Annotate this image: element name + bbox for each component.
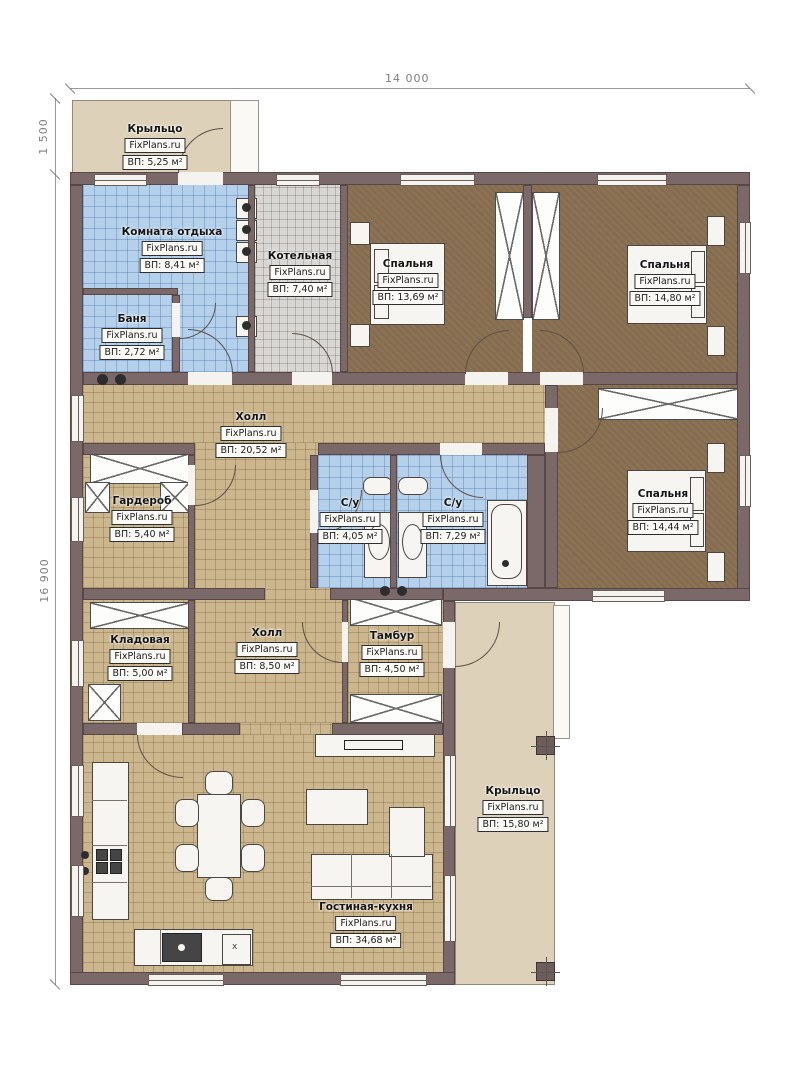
toilet-icon — [398, 477, 428, 495]
wardrobe-cabinet-icon — [350, 597, 442, 626]
door-gap-storage — [137, 723, 182, 735]
appliance-x-mark: x — [232, 942, 237, 952]
chair-icon — [175, 799, 199, 827]
wall-storage-right — [188, 600, 195, 723]
sofa-cushion-line — [391, 854, 392, 898]
watermark-box: FixPlans.ru — [634, 274, 695, 289]
door-gap-bedroom3 — [545, 408, 558, 452]
bathtub-inner — [491, 504, 522, 579]
watermark-box: FixPlans.ru — [236, 642, 297, 657]
room-name: С/у — [341, 497, 359, 509]
room-name: Тамбур — [370, 630, 415, 642]
window — [592, 590, 665, 602]
nightstand-icon — [350, 222, 370, 245]
wall-hall-wardrobe — [83, 443, 195, 455]
window — [444, 875, 456, 942]
room-label-bedroom1: Спальня FixPlans.ru ВП: 13,69 м² — [372, 258, 443, 305]
room-name: Комната отдыха — [122, 226, 223, 238]
opening-corridor-hall2 — [265, 588, 330, 600]
room-name: Спальня — [638, 488, 688, 500]
watermark-box: FixPlans.ru — [377, 273, 438, 288]
watermark-box: FixPlans.ru — [422, 512, 483, 527]
wall-bedrooms-bottom — [83, 372, 737, 385]
dimension-line-left — [55, 98, 56, 985]
door-gap-porch-top — [178, 172, 223, 185]
boiler-unit-dot — [242, 247, 251, 256]
room-name: Спальня — [383, 258, 433, 270]
stove-burner-icon — [110, 849, 122, 861]
room-name: С/у — [444, 497, 462, 509]
room-name: Спальня — [640, 259, 690, 271]
room-label-hall2: Холл FixPlans.ru ВП: 8,50 м² — [234, 627, 299, 674]
wall-boiler-bedroom1 — [340, 185, 348, 372]
wall-bath-horizontal — [83, 288, 178, 295]
stove-burner-icon — [110, 862, 122, 874]
porch-bottom-step — [553, 605, 570, 739]
nightstand-icon — [707, 326, 725, 356]
boiler-unit-dot — [242, 321, 251, 330]
nightstand-icon — [707, 216, 725, 246]
window — [340, 974, 427, 986]
room-name: Холл — [252, 627, 283, 639]
wardrobe-cabinet-icon — [350, 694, 442, 723]
room-label-bedroom2: Спальня FixPlans.ru ВП: 14,80 м² — [629, 259, 700, 306]
wardrobe-cabinet-icon — [90, 453, 190, 484]
utility-point-icon — [115, 374, 126, 385]
area-box: ВП: 15,80 м² — [477, 817, 548, 832]
wall-living-top-c — [332, 723, 443, 735]
area-box: ВП: 13,69 м² — [372, 290, 443, 305]
utility-point-icon — [397, 586, 407, 596]
counter-divider — [92, 800, 127, 801]
area-box: ВП: 5,25 м² — [122, 155, 187, 170]
porch-pillar — [536, 736, 555, 755]
room-name: Кладовая — [110, 634, 170, 646]
counter-divider — [92, 882, 127, 883]
dining-table-icon — [197, 794, 241, 878]
hall-main-floor — [83, 385, 545, 443]
window — [71, 865, 84, 917]
watermark-box: FixPlans.ru — [109, 649, 170, 664]
room-label-hall-main: Холл FixPlans.ru ВП: 20,52 м² — [215, 411, 286, 458]
wall-wardrobe-center — [523, 185, 532, 318]
sink-faucet-dot — [177, 943, 186, 952]
boiler-unit-dot — [242, 225, 251, 234]
room-name: Гардероб — [113, 495, 172, 507]
window — [276, 174, 320, 186]
chair-icon — [175, 844, 199, 872]
porch-top-step — [230, 100, 259, 174]
floor-plan-canvas: 14 000 1 500 16 900 — [0, 0, 792, 1080]
window — [400, 174, 475, 186]
watermark-box: FixPlans.ru — [269, 265, 330, 280]
area-box: ВП: 14,80 м² — [629, 291, 700, 306]
room-label-wc2: С/у FixPlans.ru ВП: 7,29 м² — [420, 497, 485, 544]
utility-point-icon — [97, 374, 108, 385]
sofa-back-line — [311, 886, 431, 887]
wardrobe-cabinet-icon — [532, 192, 560, 320]
nightstand-icon — [350, 324, 370, 347]
watermark-box: FixPlans.ru — [319, 512, 380, 527]
wardrobe-cabinet-icon — [90, 602, 190, 629]
chair-icon — [205, 771, 233, 795]
window — [739, 455, 751, 507]
window — [444, 755, 456, 827]
room-name: Баня — [117, 313, 146, 325]
window — [597, 174, 667, 186]
room-name: Гостиная-кухня — [319, 901, 413, 913]
wardrobe-cabinet-icon — [495, 192, 524, 320]
dimension-line-top — [70, 88, 750, 89]
door-gap-wc2 — [440, 443, 482, 455]
wall-hall-wc — [318, 443, 545, 455]
area-box: ВП: 4,05 м² — [317, 529, 382, 544]
watermark-box: FixPlans.ru — [124, 138, 185, 153]
watermark-box: FixPlans.ru — [141, 241, 202, 256]
chair-icon — [241, 844, 265, 872]
nightstand-icon — [707, 443, 725, 473]
room-label-living-kitchen: Гостиная-кухня FixPlans.ru ВП: 34,68 м² — [319, 901, 413, 948]
wall-living-top-b — [182, 723, 240, 735]
room-label-rest-room: Комната отдыха FixPlans.ru ВП: 8,41 м² — [122, 226, 223, 273]
wall-wc-center — [390, 455, 397, 588]
area-box: ВП: 14,44 м² — [627, 520, 698, 535]
wall-living-top-a — [83, 723, 140, 735]
window — [71, 497, 84, 542]
toilet-icon — [363, 477, 393, 495]
watermark-box: FixPlans.ru — [335, 916, 396, 931]
porch-pillar — [536, 962, 555, 981]
nightstand-icon — [707, 552, 725, 582]
window — [71, 395, 84, 442]
room-name: Котельная — [268, 250, 332, 262]
area-box: ВП: 5,00 м² — [107, 666, 172, 681]
room-label-wc1: С/у FixPlans.ru ВП: 4,05 м² — [317, 497, 382, 544]
bathtub-drain — [502, 560, 509, 567]
area-box: ВП: 5,40 м² — [109, 527, 174, 542]
stove-knob-icon — [81, 851, 89, 859]
room-label-boiler: Котельная FixPlans.ru ВП: 7,40 м² — [267, 250, 332, 297]
room-label-storage: Кладовая FixPlans.ru ВП: 5,00 м² — [107, 634, 172, 681]
area-box: ВП: 34,68 м² — [330, 933, 401, 948]
room-label-vestibule: Тамбур FixPlans.ru ВП: 4,50 м² — [359, 630, 424, 677]
wardrobe-cabinet-icon — [85, 482, 110, 513]
door-gap-entrance — [443, 622, 455, 668]
tv-icon — [344, 740, 403, 750]
room-label-porch-bottom: Крыльцо FixPlans.ru ВП: 15,80 м² — [477, 785, 548, 832]
area-box: ВП: 7,40 м² — [267, 282, 332, 297]
coffee-table-icon — [306, 789, 368, 825]
window — [94, 174, 147, 186]
wardrobe-cabinet-icon — [88, 684, 121, 721]
chair-icon — [241, 799, 265, 827]
area-box: ВП: 2,72 м² — [99, 345, 164, 360]
area-box: ВП: 7,29 м² — [420, 529, 485, 544]
utility-point-icon — [380, 586, 390, 596]
watermark-box: FixPlans.ru — [111, 510, 172, 525]
wall-restroom-boiler — [248, 185, 255, 372]
wardrobe-cabinet-icon — [598, 388, 739, 420]
sofa-seat-icon — [311, 854, 433, 900]
wall-mid-bottom-left — [83, 588, 265, 600]
room-label-wardrobe: Гардероб FixPlans.ru ВП: 5,40 м² — [109, 495, 174, 542]
stove-burner-icon — [96, 849, 108, 861]
room-name: Крыльцо — [128, 123, 183, 135]
kitchen-counter-left — [92, 762, 129, 920]
stove-burner-icon — [96, 862, 108, 874]
watermark-box: FixPlans.ru — [632, 503, 693, 518]
area-box: ВП: 4,50 м² — [359, 662, 424, 677]
boiler-unit-dot — [242, 203, 251, 212]
sofa-cushion-line — [351, 854, 352, 898]
dimension-top-label: 14 000 — [385, 72, 430, 85]
window — [739, 222, 751, 274]
door-gap-bath — [172, 303, 180, 337]
dimension-porch-label: 1 500 — [37, 118, 50, 155]
window — [71, 640, 84, 687]
wall-wc2-right — [527, 455, 545, 588]
window — [71, 765, 84, 817]
room-label-bath: Баня FixPlans.ru ВП: 2,72 м² — [99, 313, 164, 360]
counter-divider — [160, 929, 161, 964]
dimension-left-label: 16 900 — [38, 558, 51, 603]
area-box: ВП: 8,41 м² — [139, 258, 204, 273]
door-gap-wardrobe — [188, 465, 195, 505]
chair-icon — [205, 877, 233, 901]
area-box: ВП: 8,50 м² — [234, 659, 299, 674]
room-name: Холл — [236, 411, 267, 423]
area-box: ВП: 20,52 м² — [215, 443, 286, 458]
room-label-bedroom3: Спальня FixPlans.ru ВП: 14,44 м² — [627, 488, 698, 535]
room-label-porch-top: Крыльцо FixPlans.ru ВП: 5,25 м² — [122, 123, 187, 170]
room-name: Крыльцо — [486, 785, 541, 797]
watermark-box: FixPlans.ru — [361, 645, 422, 660]
sofa-chaise-icon — [389, 807, 425, 857]
watermark-box: FixPlans.ru — [482, 800, 543, 815]
watermark-box: FixPlans.ru — [220, 426, 281, 441]
window — [148, 974, 224, 986]
watermark-box: FixPlans.ru — [101, 328, 162, 343]
counter-divider — [92, 845, 127, 846]
